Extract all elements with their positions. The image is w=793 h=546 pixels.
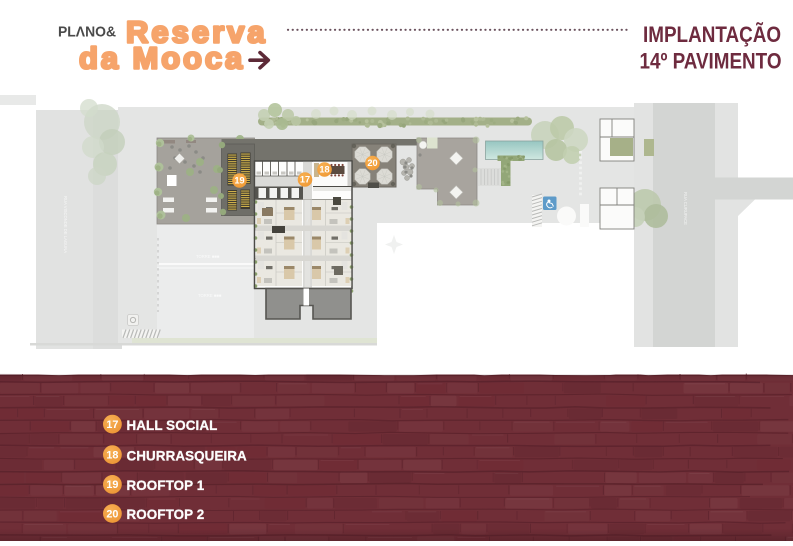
svg-text:ROOFTOP 2: ROOFTOP 2 [127, 507, 205, 522]
svg-text:IMPLANTAÇÃO: IMPLANTAÇÃO [643, 22, 781, 47]
svg-text:RUA CURUPACE: RUA CURUPACE [683, 192, 688, 225]
svg-text:da Mooca: da Mooca [79, 40, 245, 75]
svg-text:17: 17 [106, 419, 118, 431]
svg-text:PLΛNO&: PLΛNO& [58, 24, 116, 41]
svg-text:CHURRASQUEIRA: CHURRASQUEIRA [127, 448, 248, 463]
svg-text:20: 20 [367, 158, 377, 168]
svg-text:20: 20 [106, 508, 118, 520]
svg-text:19: 19 [234, 176, 244, 186]
svg-text:19: 19 [106, 479, 118, 491]
svg-text:TORRE ■■■: TORRE ■■■ [196, 254, 220, 259]
svg-text:18: 18 [106, 449, 118, 461]
svg-text:HALL SOCIAL: HALL SOCIAL [127, 418, 218, 433]
svg-text:ROOFTOP 1: ROOFTOP 1 [127, 478, 205, 493]
svg-text:TORRE ■■■: TORRE ■■■ [198, 293, 222, 298]
svg-text:17: 17 [300, 175, 310, 185]
svg-text:RUA VISCONDE DE LAGUNA: RUA VISCONDE DE LAGUNA [63, 196, 68, 253]
svg-text:14º PAVIMENTO: 14º PAVIMENTO [640, 49, 782, 74]
svg-text:18: 18 [319, 165, 329, 175]
